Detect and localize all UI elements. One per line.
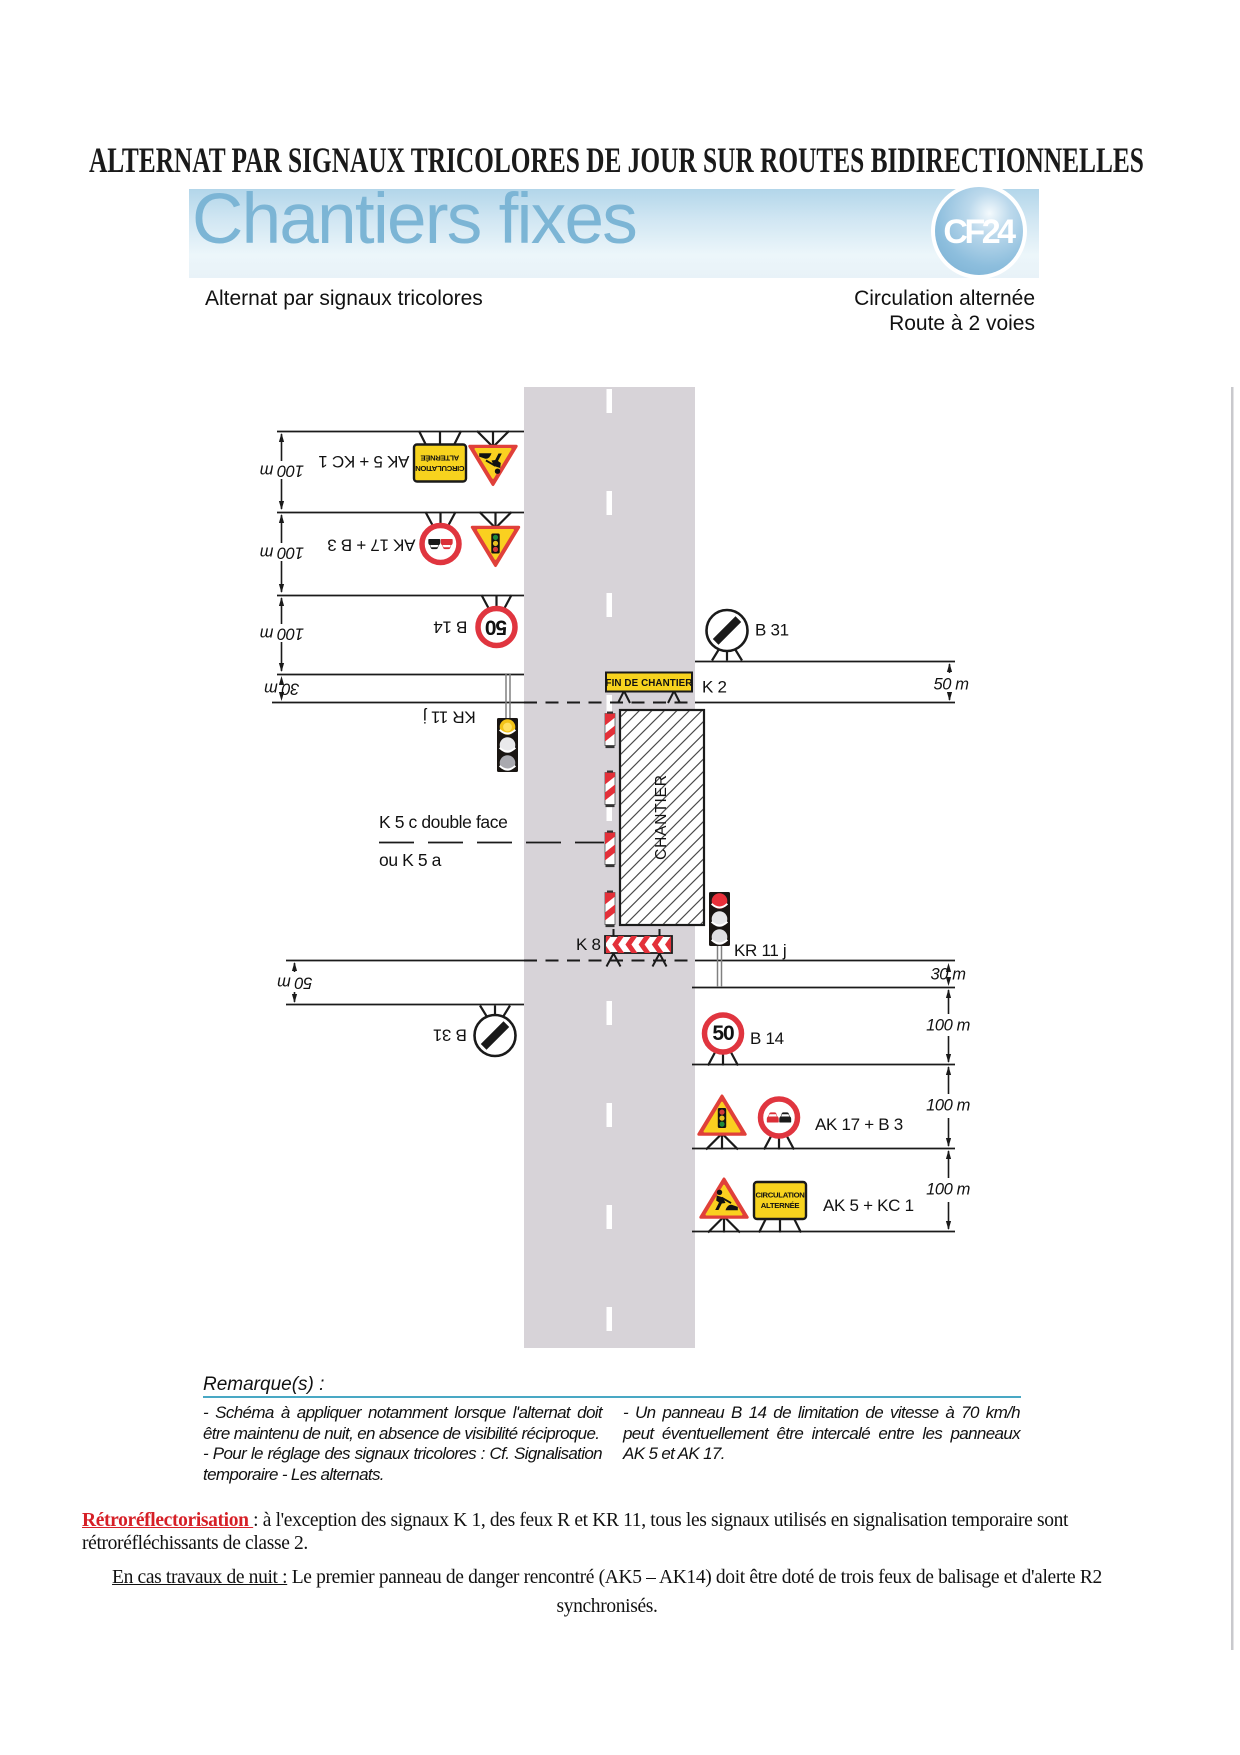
svg-text:50: 50 [486,615,508,638]
svg-text:CHANTIER: CHANTIER [653,774,670,860]
svg-text:100 m: 100 m [260,544,304,562]
svg-text:B 31: B 31 [433,1026,467,1045]
svg-text:KR 11 j: KR 11 j [423,708,475,727]
svg-text:AK 5 + KC 1: AK 5 + KC 1 [823,1196,914,1215]
svg-text:KR 11 j: KR 11 j [734,941,786,960]
svg-text:50: 50 [712,1022,734,1045]
svg-text:B 31: B 31 [755,620,789,639]
svg-text:B 14: B 14 [750,1029,784,1048]
svg-text:100 m: 100 m [260,625,304,643]
svg-text:100 m: 100 m [260,462,304,480]
svg-text:ou K 5 a: ou K 5 a [379,850,442,870]
svg-text:AK 17 + B 3: AK 17 + B 3 [328,536,416,555]
svg-text:AK 17 + B 3: AK 17 + B 3 [815,1115,903,1134]
svg-text:100 m: 100 m [926,1016,970,1034]
svg-text:FIN DE CHANTIER: FIN DE CHANTIER [606,678,693,689]
svg-text:100 m: 100 m [926,1096,970,1114]
svg-text:100 m: 100 m [926,1180,970,1198]
svg-text:B 14: B 14 [434,618,468,637]
svg-text:AK 5 + KC 1: AK 5 + KC 1 [319,452,410,471]
svg-text:50 m: 50 m [277,974,312,992]
svg-text:30 m: 30 m [930,965,965,983]
svg-text:30 m: 30 m [264,680,299,698]
svg-text:K 2: K 2 [702,677,727,696]
svg-text:K 8: K 8 [576,935,601,954]
svg-text:K 5 c double face: K 5 c double face [379,812,507,832]
svg-text:50 m: 50 m [933,675,968,693]
